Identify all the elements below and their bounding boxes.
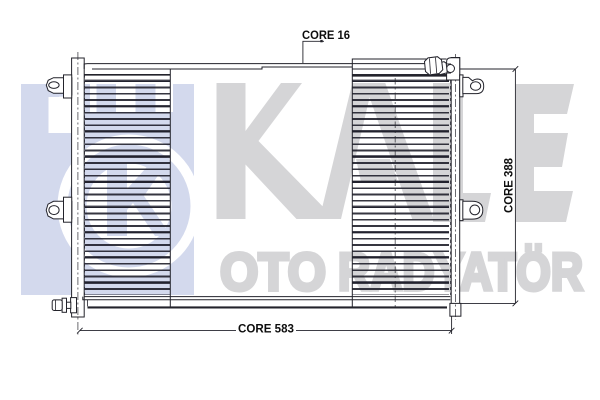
svg-text:CORE 583: CORE 583 [238, 322, 294, 336]
svg-text:CORE 388: CORE 388 [502, 158, 516, 213]
svg-text:CORE 16: CORE 16 [302, 28, 350, 42]
